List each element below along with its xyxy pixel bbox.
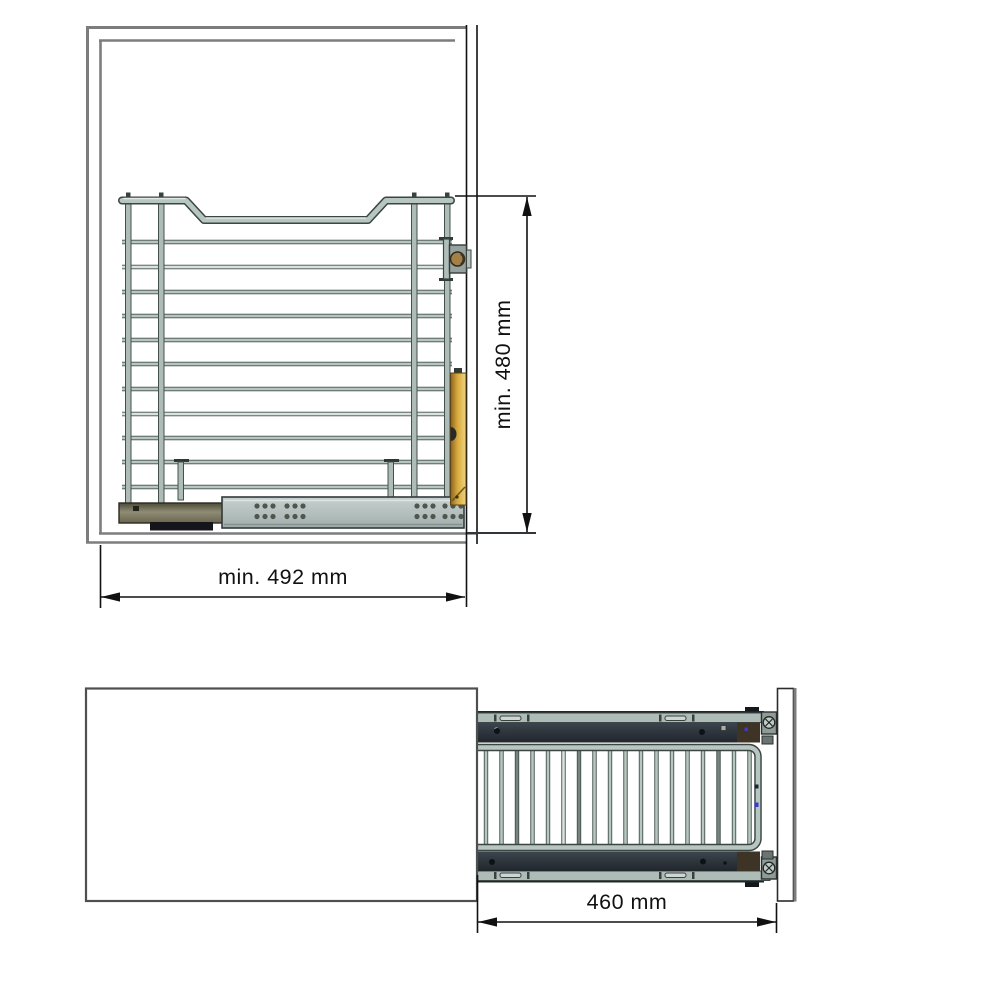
divider-post <box>388 462 394 500</box>
arrow-left-icon <box>101 592 120 601</box>
fixing-tab <box>762 851 773 859</box>
runner-black-strip <box>150 522 213 531</box>
slot <box>665 716 686 721</box>
slide-hole <box>292 514 297 519</box>
rivet <box>699 729 705 735</box>
slot-tick <box>494 715 497 722</box>
post-nub <box>445 193 450 197</box>
slide-hole <box>270 514 275 519</box>
slide-hole <box>300 503 305 508</box>
slide-hole <box>458 514 463 519</box>
slot-tick <box>527 872 530 879</box>
arrow-down-icon <box>522 513 531 532</box>
basket-post <box>159 198 165 506</box>
slot-tick <box>692 872 695 879</box>
rail-band-end-tint <box>737 723 760 743</box>
slot-tick <box>527 715 530 722</box>
cabinet-top-panel <box>86 689 477 902</box>
dimension-depth: 460 mm <box>478 875 777 933</box>
slot <box>500 873 521 878</box>
slide-hole <box>262 503 267 508</box>
slot-tick <box>659 872 662 879</box>
slide-hole <box>254 514 259 519</box>
slide-hole <box>262 514 267 519</box>
runner-notch <box>133 506 139 511</box>
bracket-rivet <box>455 495 458 498</box>
drawing-canvas: min. 480 mm min. 492 mm <box>0 0 1001 1001</box>
slide-hole <box>442 514 447 519</box>
basket-top-rail <box>122 199 451 221</box>
clip-plate <box>444 239 450 279</box>
dark-dot <box>755 785 759 789</box>
extended-basket-top-view: 460 mm <box>86 688 795 933</box>
slide-hole <box>254 503 259 508</box>
slot <box>500 716 521 721</box>
top-rail-outline <box>122 201 451 221</box>
slide-hole <box>414 514 419 519</box>
cabinet-front-view: min. 480 mm min. 492 mm <box>86 25 536 608</box>
slide-hole <box>430 503 435 508</box>
frame-outline <box>470 748 758 848</box>
clip-bracket <box>439 239 471 280</box>
fixing-tab <box>762 736 773 744</box>
dimension-width-label: min. 492 mm <box>218 565 348 589</box>
rivet <box>489 859 495 865</box>
rail-charcoal-band-bottom <box>470 852 760 872</box>
slot-tick <box>494 872 497 879</box>
technical-drawing-page: min. 480 mm min. 492 mm <box>0 0 1001 1001</box>
basket-post <box>126 198 132 506</box>
divider-posts <box>174 461 399 501</box>
arrow-right-icon <box>757 917 776 926</box>
arrow-left-icon <box>478 917 497 926</box>
dimension-width: min. 492 mm <box>101 545 466 608</box>
clip-tab <box>467 250 472 268</box>
cabinet-carcass-outline <box>86 27 477 543</box>
front-panel-body <box>778 689 794 902</box>
slot-tick <box>692 715 695 722</box>
post-nub <box>412 193 417 197</box>
post-nub <box>159 193 164 197</box>
frame-rail <box>470 748 758 848</box>
slot <box>665 873 686 878</box>
wire-basket-front <box>122 193 452 507</box>
slide-hole <box>284 503 289 508</box>
slide-hole <box>300 514 305 519</box>
post-nub <box>126 193 131 197</box>
slide-hole <box>442 503 447 508</box>
rail-band-end-tint <box>737 852 760 872</box>
dimension-depth-label: 460 mm <box>587 890 668 914</box>
blue-dot <box>755 803 759 808</box>
small-square <box>721 726 726 731</box>
slide-hole <box>292 503 297 508</box>
mounting-bracket-orange <box>451 368 467 505</box>
slide-hole <box>430 514 435 519</box>
dimension-height-label: min. 480 mm <box>491 300 515 430</box>
basket-post <box>412 198 418 506</box>
basket-wires-topview <box>486 749 750 846</box>
slide-hole <box>270 503 275 508</box>
slide-hole <box>422 503 427 508</box>
blue-dot <box>745 728 749 732</box>
slide-hole <box>284 514 289 519</box>
rivet <box>700 859 706 865</box>
arrow-right-icon <box>446 592 465 601</box>
slide-hole <box>422 514 427 519</box>
rivet-small <box>723 861 726 864</box>
slot-tick <box>659 715 662 722</box>
bottom-runner-assembly <box>119 497 464 531</box>
slide-hole <box>450 514 455 519</box>
front-panel <box>778 688 796 902</box>
cabinet-right-side-panel <box>467 25 478 607</box>
post-top-nubs <box>126 193 450 197</box>
rail-charcoal-band-top <box>470 723 760 743</box>
pullout-basket-top <box>470 707 777 887</box>
rail-end-stop <box>745 882 759 887</box>
arrow-up-icon <box>522 197 531 216</box>
drawer-slide <box>222 497 464 528</box>
basket-frame-topview <box>470 748 758 848</box>
basket-wires <box>122 242 452 487</box>
slide-hole <box>414 503 419 508</box>
divider-post <box>178 462 184 500</box>
